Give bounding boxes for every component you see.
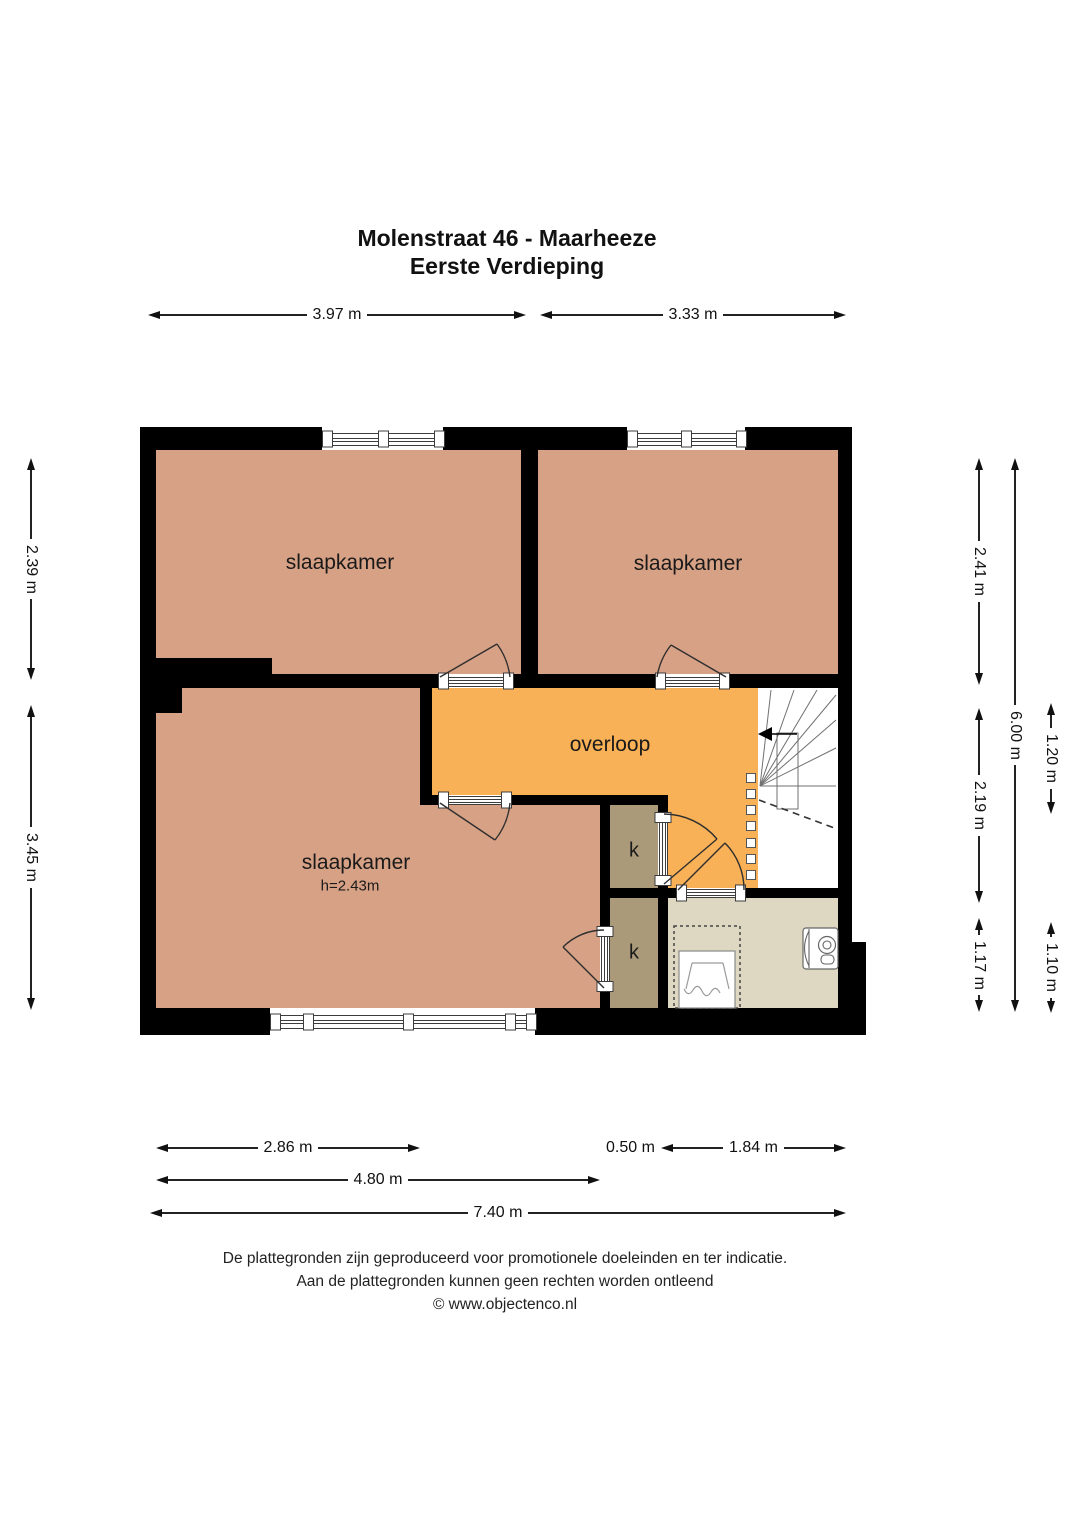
floorplan-canvas: Molenstraat 46 - Maarheeze Eerste Verdie… — [0, 0, 1080, 1527]
arrow-left-icon — [661, 1144, 673, 1152]
wall-segment — [140, 427, 322, 450]
title-address: Molenstraat 46 - Maarheeze — [0, 224, 1014, 252]
wall-segment — [600, 990, 610, 1008]
room-stairwell — [758, 688, 838, 888]
dimension-label: 3.45 m — [22, 827, 40, 888]
door-frame-icon — [438, 673, 449, 690]
dimension-left-1: 2.39 m — [22, 458, 40, 680]
wall-segment — [156, 674, 438, 688]
arrow-right-icon — [834, 1144, 846, 1152]
dimension-bottom-3: 7.40 m — [150, 1205, 846, 1221]
dimension-label: 1.10 m — [1042, 937, 1060, 998]
arrow-down-icon — [1011, 1000, 1019, 1012]
dimension-label: 2.86 m — [258, 1139, 319, 1157]
door-opening-bathroom — [676, 888, 744, 898]
disclaimer-line-2: Aan de plattegronden kunnen geen rechten… — [0, 1270, 1010, 1293]
window-frame-icon — [526, 1013, 537, 1030]
window-top-left — [322, 427, 443, 450]
window-top-right — [627, 427, 745, 450]
window-frame-icon — [434, 430, 445, 447]
dimension-label: 4.80 m — [348, 1171, 409, 1189]
door-opening-closet-lower — [600, 928, 610, 990]
door-opening-bedroom-top-right — [655, 674, 728, 688]
arrow-down-icon — [1047, 1001, 1055, 1013]
door-frame-icon — [503, 673, 514, 690]
dimension-label: 7.40 m — [468, 1204, 529, 1222]
door-opening-closet-upper — [658, 814, 668, 884]
baluster-icon — [746, 821, 756, 831]
room-label-bedroom-top-right: slaapkamer — [634, 552, 743, 576]
door-frame-icon — [655, 812, 672, 823]
arrow-right-icon — [408, 1144, 420, 1152]
arrow-up-icon — [1011, 458, 1019, 470]
dimension-label: 6.00 m — [1006, 705, 1024, 766]
arrow-up-icon — [975, 708, 983, 720]
window-frame-icon — [403, 1013, 414, 1030]
arrow-right-icon — [514, 311, 526, 319]
baluster-icon — [746, 838, 756, 848]
arrow-up-icon — [1047, 703, 1055, 715]
dimension-label: 0.50 m — [600, 1139, 661, 1157]
room-label-closet-lower: k — [629, 942, 639, 965]
wall-segment — [600, 888, 676, 898]
door-frame-icon — [501, 792, 512, 809]
wall-segment — [510, 795, 668, 805]
door-threshold-icon — [659, 814, 668, 884]
wall-segment — [140, 1008, 270, 1035]
wall-segment — [658, 898, 668, 1008]
room-label-bedroom-top-left: slaapkamer — [286, 551, 395, 575]
wall-segment — [156, 658, 272, 674]
dimension-left-2: 3.45 m — [22, 705, 40, 1010]
arrow-down-icon — [27, 998, 35, 1010]
dimension-label: 1.84 m — [723, 1139, 784, 1157]
baluster-icon — [746, 773, 756, 783]
window-frame-icon — [681, 430, 692, 447]
wall-segment — [745, 427, 852, 450]
door-frame-icon — [597, 981, 614, 992]
dimension-right-total: 6.00 m — [1006, 458, 1024, 1012]
arrow-right-icon — [834, 311, 846, 319]
window-frame-icon — [303, 1013, 314, 1030]
dimension-label: 3.97 m — [307, 306, 368, 324]
arrow-down-icon — [27, 668, 35, 680]
arrow-down-icon — [975, 673, 983, 685]
wall-segment — [535, 1008, 866, 1035]
window-frame-icon — [270, 1013, 281, 1030]
arrow-up-icon — [27, 458, 35, 470]
dimension-bottom-1a: 2.86 m — [156, 1140, 420, 1156]
arrow-down-icon — [975, 891, 983, 903]
room-label-landing: overloop — [570, 733, 651, 757]
wall-segment — [600, 805, 610, 928]
ceiling-height-note: h=2.43m — [321, 878, 380, 895]
room-landing-column — [668, 795, 758, 888]
baluster-icon — [746, 805, 756, 815]
door-frame-icon — [655, 673, 666, 690]
dimension-label: 3.33 m — [663, 306, 724, 324]
arrow-up-icon — [975, 918, 983, 930]
door-frame-icon — [676, 885, 687, 902]
wall-segment — [420, 795, 438, 805]
arrow-right-icon — [834, 1209, 846, 1217]
arrow-up-icon — [975, 458, 983, 470]
window-frame-icon — [736, 430, 747, 447]
wall-segment — [512, 674, 655, 688]
arrow-left-icon — [148, 311, 160, 319]
room-label-closet-upper: k — [629, 840, 639, 863]
disclaimer: De plattegronden zijn geproduceerd voor … — [0, 1247, 1010, 1316]
wall-segment — [521, 450, 538, 674]
door-frame-icon — [719, 673, 730, 690]
door-frame-icon — [597, 926, 614, 937]
door-frame-icon — [438, 792, 449, 809]
wall-segment — [420, 688, 432, 795]
door-opening-bedroom-top-left — [438, 674, 512, 688]
dimension-top-2: 3.33 m — [540, 307, 846, 323]
title-floor: Eerste Verdieping — [0, 252, 1014, 280]
wall-segment — [140, 450, 156, 1035]
room-bathroom — [668, 898, 838, 1008]
door-opening-bedroom-large — [438, 795, 510, 805]
arrow-left-icon — [156, 1176, 168, 1184]
arrow-down-icon — [975, 1000, 983, 1012]
arrow-left-icon — [540, 311, 552, 319]
door-frame-icon — [735, 885, 746, 902]
dimension-label: 1.20 m — [1042, 728, 1060, 789]
room-label-bedroom-large: slaapkamer — [302, 851, 411, 875]
window-bottom — [270, 1008, 535, 1035]
wall-segment — [838, 450, 852, 1035]
window-frame-icon — [505, 1013, 516, 1030]
baluster-icon — [746, 789, 756, 799]
wall-segment — [728, 674, 838, 688]
wall-segment — [443, 427, 627, 450]
arrow-down-icon — [1047, 802, 1055, 814]
window-frame-icon — [322, 430, 333, 447]
door-threshold-icon — [438, 677, 512, 687]
dimension-right-3: 1.17 m — [970, 918, 988, 1012]
dimension-right-1: 2.41 m — [970, 458, 988, 685]
window-frame-icon — [627, 430, 638, 447]
wall-segment — [140, 688, 182, 713]
dimension-top-1: 3.97 m — [148, 307, 526, 323]
dimension-label: 2.41 m — [970, 541, 988, 602]
arrow-left-icon — [156, 1144, 168, 1152]
door-frame-icon — [655, 875, 672, 886]
dimension-bottom-2: 4.80 m — [156, 1172, 600, 1188]
baluster-icon — [746, 870, 756, 880]
dimension-label: 2.19 m — [970, 775, 988, 836]
dimension-bottom-1b: 0.50 m 1.84 m — [600, 1140, 846, 1156]
disclaimer-line-1: De plattegronden zijn geproduceerd voor … — [0, 1247, 1010, 1270]
page-title: Molenstraat 46 - Maarheeze Eerste Verdie… — [0, 224, 1014, 280]
wall-segment — [744, 888, 838, 898]
baluster-icon — [746, 854, 756, 864]
arrow-up-icon — [27, 705, 35, 717]
arrow-right-icon — [588, 1176, 600, 1184]
dimension-right-outer-1: 1.20 m — [1042, 703, 1060, 814]
arrow-left-icon — [150, 1209, 162, 1217]
arrow-up-icon — [1047, 922, 1055, 934]
window-frame-icon — [378, 430, 389, 447]
dimension-right-2: 2.19 m — [970, 708, 988, 903]
dimension-label: 2.39 m — [22, 539, 40, 600]
dimension-right-outer-2: 1.10 m — [1042, 922, 1060, 1012]
dimension-label: 1.17 m — [970, 935, 988, 996]
copyright: © www.objectenco.nl — [0, 1293, 1010, 1316]
